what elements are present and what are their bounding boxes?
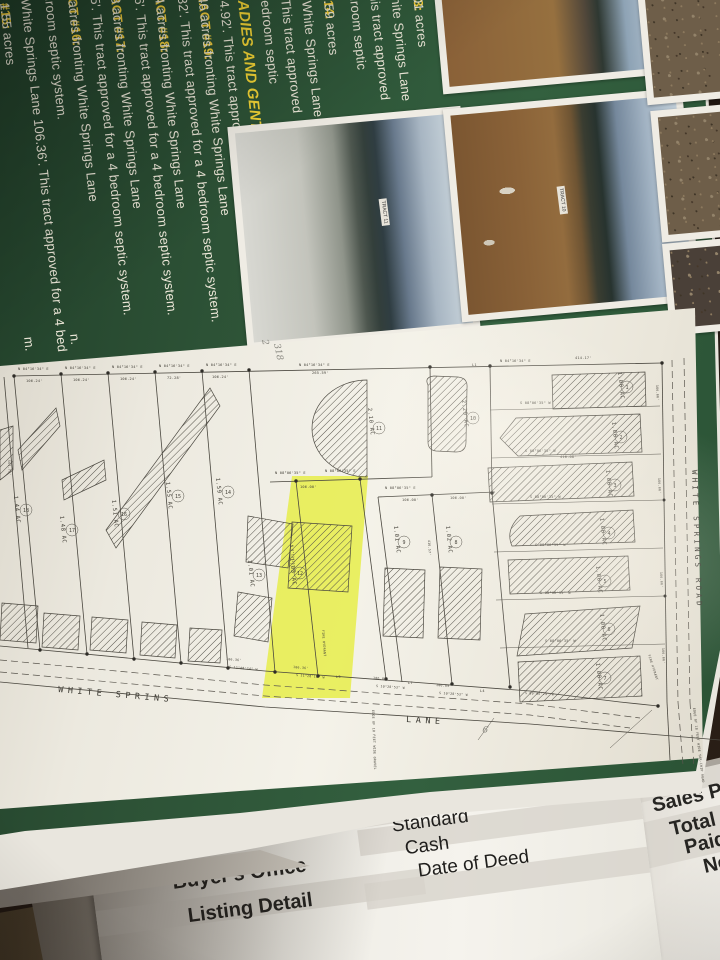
photo-of-real-estate-flyer: S Orig Sales Price Total Selle Paid New … (0, 0, 720, 960)
vignette (0, 0, 720, 960)
